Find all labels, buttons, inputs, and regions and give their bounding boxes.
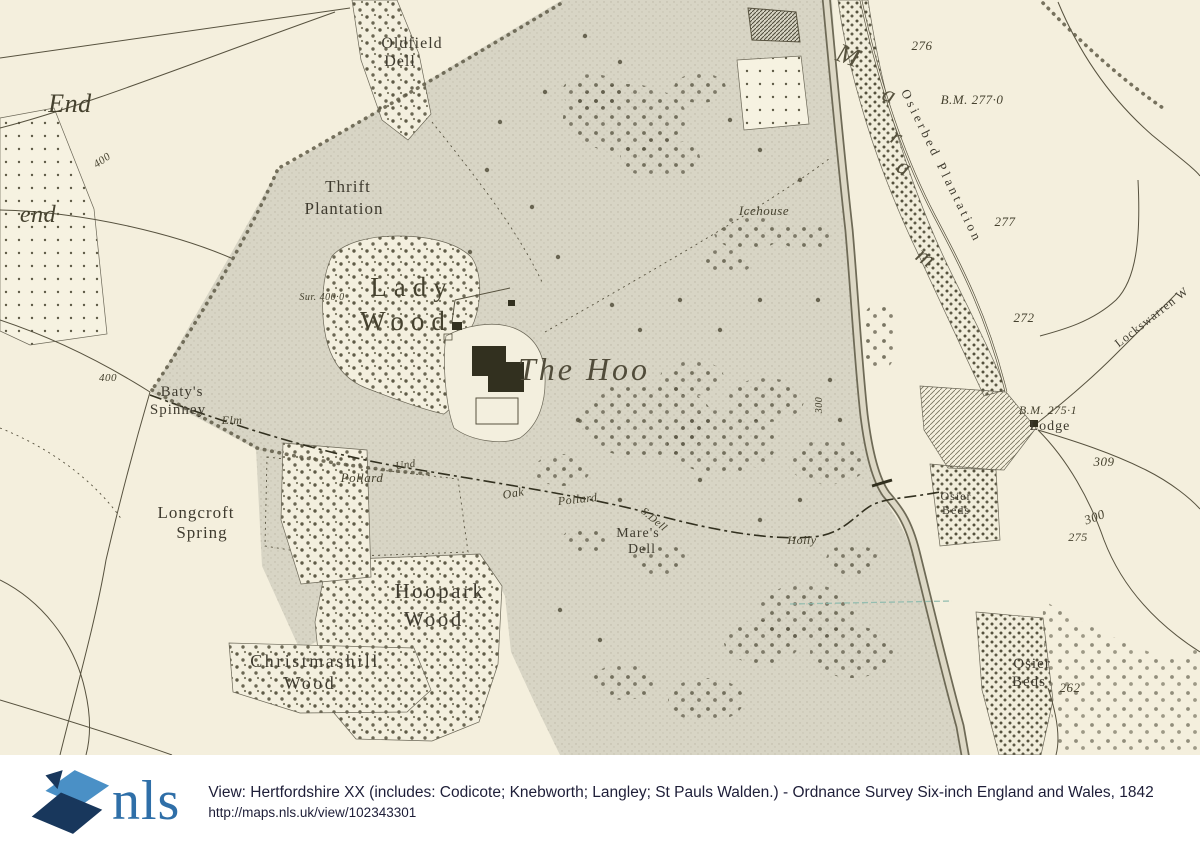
map-label-num-400-w: 400 xyxy=(99,372,117,384)
map-label-osier-mid-2: Beds xyxy=(942,503,970,517)
map-label-hoopark-1: Hoopark xyxy=(395,579,486,603)
map-label-osier-bot-2: Beds xyxy=(1012,674,1046,690)
map-label-icehouse: Icehouse xyxy=(738,203,789,218)
nls-logo-mark xyxy=(30,763,116,841)
map-label-thrift-1: Thrift xyxy=(325,177,371,196)
map-metadata: View: Hertfordshire XX (includes: Codico… xyxy=(208,784,1153,820)
map-view-title: View: Hertfordshire XX (includes: Codico… xyxy=(208,784,1153,802)
map-label-lady-2: Wood xyxy=(360,306,452,336)
longcroft-spinney-area xyxy=(281,443,371,584)
map-label-num-309: 309 xyxy=(1093,454,1115,469)
map-label-holly: Holly xyxy=(786,533,816,547)
map-label-longcroft-2: Spring xyxy=(176,523,227,542)
hatched-plot xyxy=(748,8,800,42)
map-label-sur-400: Sur. 400·0 xyxy=(299,292,344,303)
map-label-lady-1: Lady xyxy=(370,272,453,302)
map-label-longcroft-1: Longcroft xyxy=(158,503,235,522)
map-label-mares-2: Dell xyxy=(628,542,656,557)
map-label-hoopark-2: Wood xyxy=(404,607,464,631)
map-image[interactable]: EndendOldfieldDellThriftPlantationSur. 4… xyxy=(0,0,1200,755)
map-label-num-300-river: 300 xyxy=(814,397,825,415)
map-label-batys-1: Baty's xyxy=(161,384,204,400)
map-label-bm-2751: B.M. 275·1 xyxy=(1019,403,1077,417)
map-label-pollard-w: Pollard xyxy=(340,470,384,485)
map-label-end-lower: end xyxy=(20,202,57,228)
nls-logo[interactable]: nls xyxy=(30,763,180,841)
map-label-the-hoo: The Hoo xyxy=(518,351,650,387)
map-label-xmas-1: Christmashill xyxy=(250,651,380,671)
map-viewport[interactable]: EndendOldfieldDellThriftPlantationSur. 4… xyxy=(0,0,1200,755)
map-label-lodge: Lodge xyxy=(1030,419,1071,434)
nls-wordmark: nls xyxy=(112,779,180,824)
map-label-bm-2770: B.M. 277·0 xyxy=(941,92,1004,107)
map-label-num-262: 262 xyxy=(1060,680,1081,695)
map-view-url[interactable]: http://maps.nls.uk/view/102343301 xyxy=(208,805,1153,820)
map-label-mares-1: Mare's xyxy=(616,526,660,541)
map-label-batys-2: Spinney xyxy=(150,402,206,418)
map-label-elm: Elm xyxy=(221,413,243,427)
map-label-osier-mid-1: Osier xyxy=(941,489,972,503)
orchard-plot xyxy=(737,56,809,130)
map-label-oldfield-1: Oldfield xyxy=(381,35,442,52)
map-label-xmas-2: Wood xyxy=(284,673,337,693)
map-label-num-272: 272 xyxy=(1014,310,1035,325)
map-label-end-upper: End xyxy=(47,89,92,118)
map-label-num-277: 277 xyxy=(995,214,1016,229)
map-label-num-275: 275 xyxy=(1068,530,1088,544)
map-label-osier-bot-1: Osier xyxy=(1013,656,1051,672)
footer-bar: nls View: Hertfordshire XX (includes: Co… xyxy=(0,755,1200,848)
map-label-oldfield-2: Dell xyxy=(384,53,416,70)
map-label-thrift-2: Plantation xyxy=(305,199,384,218)
map-label-num-276: 276 xyxy=(912,38,933,53)
page: EndendOldfieldDellThriftPlantationSur. 4… xyxy=(0,0,1200,848)
logo-dark-diamond xyxy=(32,792,103,833)
